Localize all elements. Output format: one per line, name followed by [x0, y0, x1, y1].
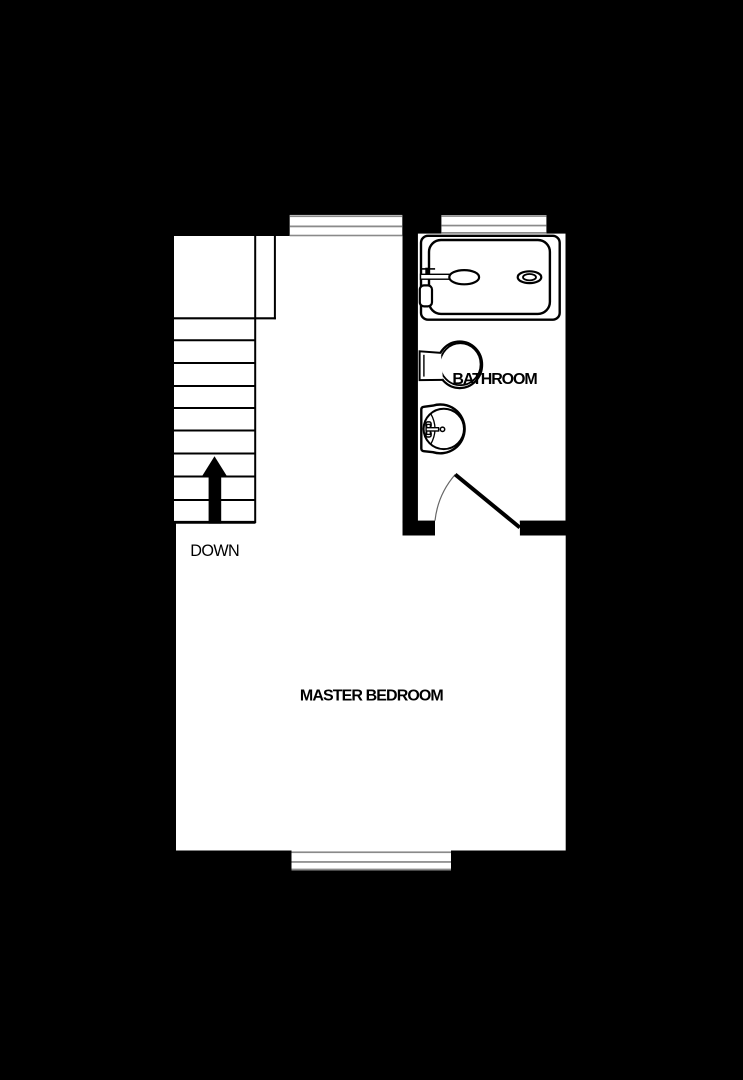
svg-text:MASTER BEDROOM: MASTER BEDROOM — [300, 687, 444, 704]
svg-text:BATHROOM: BATHROOM — [452, 371, 537, 388]
svg-text:DOWN: DOWN — [190, 542, 239, 560]
